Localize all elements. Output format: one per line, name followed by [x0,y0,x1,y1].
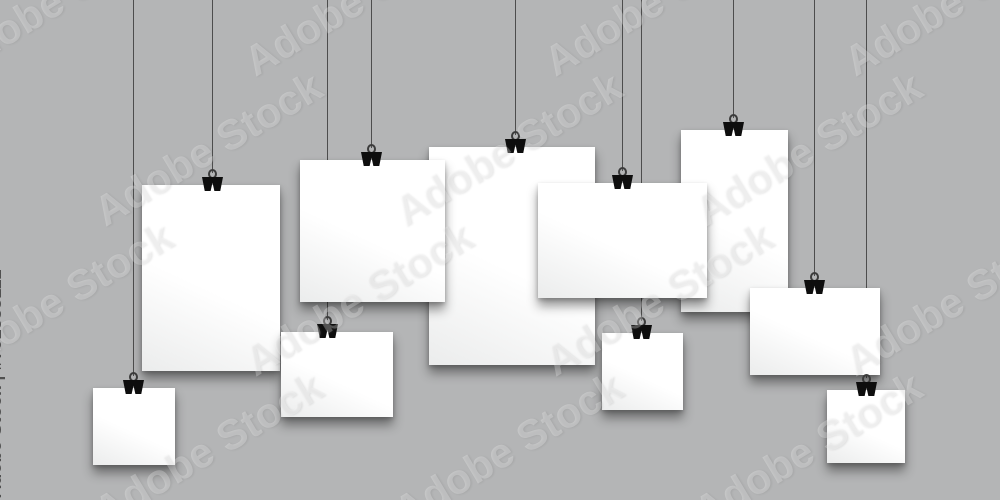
adobe-stock-watermark: Adobe Stock [986,62,1000,235]
clip-body [317,324,338,338]
adobe-stock-watermark: Adobe Stock [236,0,481,86]
binder-clip-icon [123,372,144,396]
adobe-stock-watermark: Adobe Stock [386,362,631,500]
hanging-string [814,0,815,276]
clip-body [804,280,825,294]
binder-clip-icon [361,144,382,168]
paper-sheet [281,332,393,417]
hanging-string [622,0,623,171]
paper-sheet [300,160,445,302]
clip-body [202,177,223,191]
binder-clip-icon [804,272,825,296]
clip-body [723,122,744,136]
binder-clip-icon [856,374,877,398]
paper-7 [93,388,175,465]
paper-sheet [538,183,707,298]
paper-1 [142,185,280,371]
clip-body [361,152,382,166]
binder-clip-icon [723,114,744,138]
paper-sheet [750,288,880,375]
paper-sheet [93,388,175,465]
paper-9 [602,333,683,410]
binder-clip-icon [631,317,652,341]
adobe-stock-watermark: Adobe Stock [536,0,781,86]
clip-body [612,175,633,189]
binder-clip-icon [505,131,526,155]
clip-body [631,325,652,339]
hanging-string [212,0,213,173]
paper-10 [827,390,905,463]
adobe-stock-watermark: Adobe Stock [986,362,1000,500]
clip-body [856,382,877,396]
clip-body [505,139,526,153]
paper-sheet [827,390,905,463]
mockup-canvas: Adobe Stock | #701838112 Adobe StockAdob… [0,0,1000,500]
adobe-stock-watermark: Adobe Stock [836,0,1000,86]
paper-6 [750,288,880,375]
binder-clip-icon [202,169,223,193]
binder-clip-icon [317,316,338,340]
hanging-string [515,0,516,135]
paper-sheet [142,185,280,371]
hanging-string [371,0,372,148]
paper-4 [538,183,707,298]
clip-body [123,380,144,394]
paper-8 [281,332,393,417]
binder-clip-icon [612,167,633,191]
hanging-string [133,0,134,376]
hanging-string [733,0,734,118]
adobe-stock-watermark: Adobe Stock [0,0,181,86]
paper-2 [300,160,445,302]
paper-sheet [602,333,683,410]
stock-id-watermark: Adobe Stock | #701838112 [0,269,6,498]
